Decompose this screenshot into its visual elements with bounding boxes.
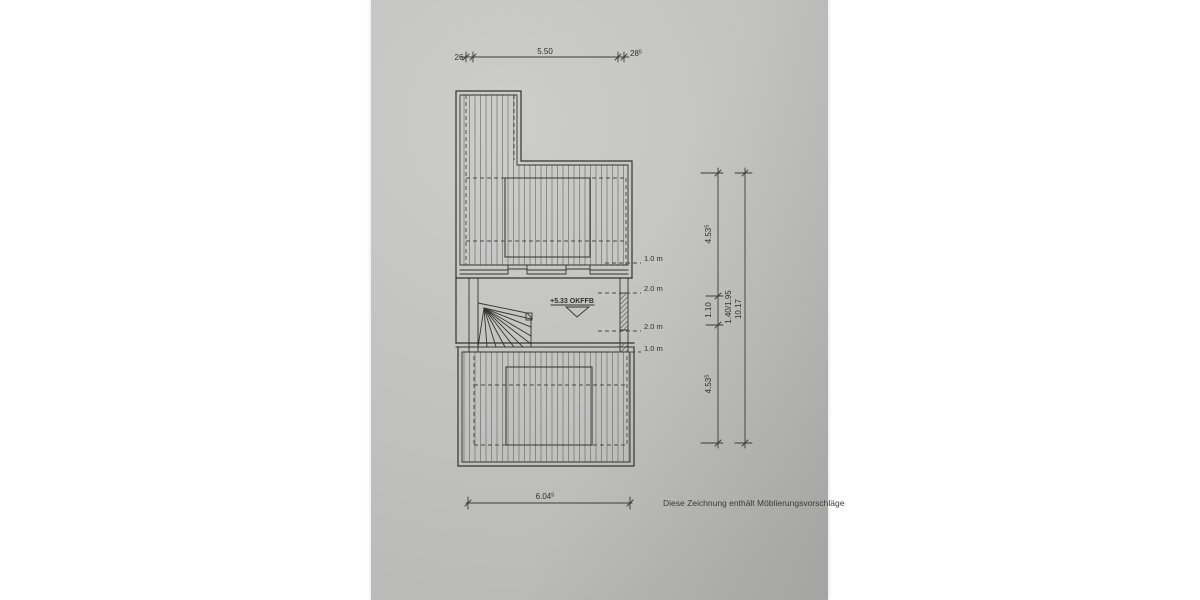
knee-wall-window-band	[460, 265, 628, 270]
dimension-top: 26 5.50 285	[455, 47, 642, 62]
furnishing-note: Diese Zeichnung enthält Möblierungsvorsc…	[663, 498, 845, 508]
dim-right-total: 10.17	[734, 298, 743, 319]
dim-bottom-span: 6.045	[536, 492, 555, 501]
dim-right-opening: 1.40/1.95	[724, 290, 733, 324]
level-marker-label: +5.33 OKFFB	[550, 298, 594, 305]
height-line-label-4: 1.0 m	[644, 344, 663, 353]
winder-stair	[478, 303, 532, 347]
height-line-label-1: 1.0 m	[644, 254, 663, 263]
screenshot: +5.33 OKFFB 1.0 m	[0, 0, 1200, 600]
dim-top-left-wall: 26	[455, 53, 464, 62]
dimension-right-chain: 4.535 1.10 1.40/1.95 4.535 10.17	[701, 168, 752, 448]
height-line-label-3: 2.0 m	[644, 322, 663, 331]
height-line-label-2: 2.0 m	[644, 284, 663, 293]
level-triangle-icon	[566, 307, 589, 317]
dim-right-upper-room: 4.535	[704, 225, 713, 244]
floor-plan-drawing: +5.33 OKFFB 1.0 m	[0, 0, 1200, 600]
level-marker: +5.33 OKFFB	[550, 298, 594, 317]
upper-room	[456, 91, 632, 343]
dim-top-span: 5.50	[537, 47, 553, 56]
left-wall-pier	[469, 278, 478, 352]
stair-landing: +5.33 OKFFB	[456, 278, 634, 352]
height-lines: 1.0 m 2.0 m 2.0 m 1.0 m	[598, 254, 663, 353]
dim-right-lower-room: 4.535	[704, 375, 713, 394]
dim-right-landing: 1.10	[704, 302, 713, 318]
lower-room	[458, 347, 634, 466]
right-wall-window	[620, 278, 628, 352]
dim-top-right-wall: 285	[630, 49, 642, 58]
dimension-bottom: 6.045	[465, 492, 633, 509]
